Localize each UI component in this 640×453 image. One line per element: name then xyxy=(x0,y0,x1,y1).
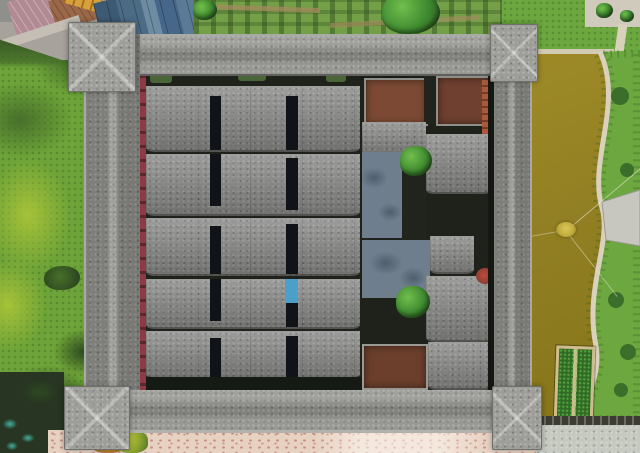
blue-tarp xyxy=(285,279,298,303)
roof-slot-1b xyxy=(286,96,298,150)
shore-tree-4 xyxy=(620,344,636,360)
roof-slot-2b xyxy=(286,158,298,210)
roof-row-3 xyxy=(146,218,360,276)
wall-west xyxy=(84,34,140,430)
roof-row-1 xyxy=(146,86,360,152)
wall-east xyxy=(494,34,532,430)
south-hall-roof xyxy=(428,342,492,390)
middle-hall-roof xyxy=(430,236,474,274)
red-courtyard-west xyxy=(364,78,428,126)
wall-south xyxy=(84,390,532,433)
tower-northeast xyxy=(490,24,538,82)
roof-slot-2a xyxy=(210,154,221,206)
roof-slot-3a xyxy=(210,226,221,274)
roof-row-2 xyxy=(146,154,360,216)
earth-courtyard-south xyxy=(362,344,428,390)
plaza-tree-2 xyxy=(620,10,634,22)
roof-slot-1a xyxy=(210,96,221,150)
roof-row-5 xyxy=(146,331,360,379)
tower-northwest xyxy=(68,22,136,92)
roof-slot-3b xyxy=(286,224,298,274)
roof-row-4 xyxy=(146,279,360,329)
lawn-bush-lower xyxy=(44,266,80,290)
main-hall-roof xyxy=(426,134,492,194)
roof-slot-5b xyxy=(286,336,298,377)
tower-southwest xyxy=(64,386,130,450)
shore-tree-5 xyxy=(614,383,628,397)
tower-southeast xyxy=(492,386,542,450)
planting-raft xyxy=(554,345,596,424)
dark-passage xyxy=(402,176,426,242)
roof-slot-4b xyxy=(286,302,298,327)
wall-north xyxy=(84,34,530,76)
roof-slot-5a xyxy=(210,338,221,377)
roof-block-lane xyxy=(146,377,362,390)
stone-courtyard-north xyxy=(362,152,402,238)
lower-hall-roof xyxy=(426,276,494,342)
aerial-photo-canvas xyxy=(0,0,640,453)
shore-tree-1 xyxy=(611,87,629,105)
aerator-float xyxy=(556,222,576,237)
roof-slot-4a xyxy=(210,279,221,321)
